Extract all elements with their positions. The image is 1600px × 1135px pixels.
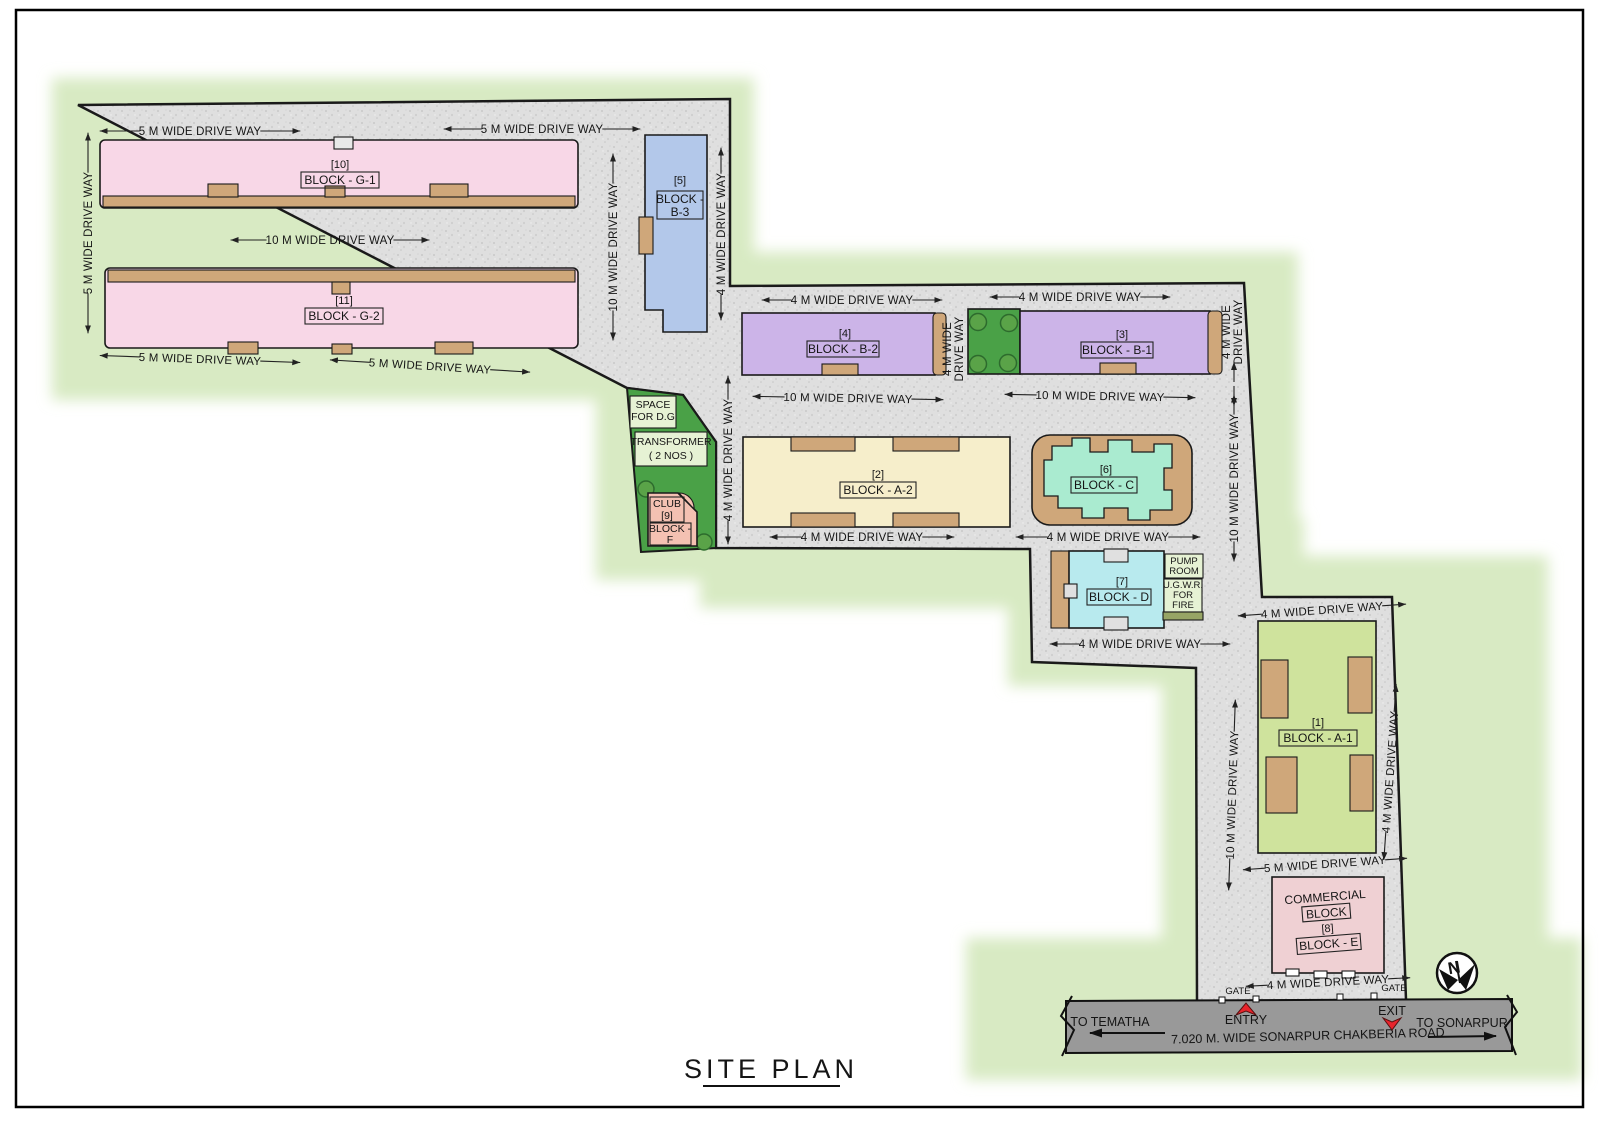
gate-post [1337,994,1343,1000]
block-g1-number: [10] [331,159,349,171]
block-c-name: BLOCK - C [1074,478,1134,492]
transformer-label: ( 2 NOS ) [649,450,693,462]
tree-icon [1000,355,1017,372]
block-b2: [4] BLOCK - B-2 [742,313,946,375]
club-label: CLUB [653,498,681,510]
svg-text:4 M WIDE DRIVE WAY: 4 M WIDE DRIVE WAY [1019,292,1142,304]
ugwr-label: FIRE [1172,600,1194,611]
entry-notch [1064,584,1077,598]
road: TO TEMATHA TO SONARPUR 7.020 M. WIDE SON… [1061,995,1517,1056]
driveway-label: 4 M WIDEDRIVE WAY [942,316,966,381]
site-plan-drawing: TO TEMATHA TO SONARPUR 7.020 M. WIDE SON… [0,0,1600,1135]
page-title: SITE PLAN [684,1054,858,1084]
block-d-number: [7] [1116,576,1128,588]
svg-text:10 M WIDE DRIVE WAY: 10 M WIDE DRIVE WAY [265,235,394,247]
svg-text:10 M WIDE DRIVE WAY: 10 M WIDE DRIVE WAY [1229,413,1241,542]
block-f-name: F [667,534,673,546]
block-e-commercial: COMMERCIAL BLOCK [8] BLOCK - E [1272,877,1384,978]
block-b3: [5] BLOCK - B-3 [639,135,707,332]
block-a2-name: BLOCK - A-2 [843,483,913,497]
svg-text:4 M WIDE DRIVE WAY: 4 M WIDE DRIVE WAY [1079,639,1202,651]
space-for-dg-label: SPACE [636,399,671,411]
verandah-strip [103,196,575,207]
svg-text:4 M WIDE DRIVE WAY: 4 M WIDE DRIVE WAY [723,399,735,522]
block-b2-name: BLOCK - B-2 [808,342,878,356]
block-c-number: [6] [1100,464,1112,476]
svg-text:4 M WIDE DRIVE WAY: 4 M WIDE DRIVE WAY [791,295,914,307]
tree-icon [1001,315,1018,332]
north-compass-icon: N [1437,953,1477,993]
driveway-label: 4 M WIDEDRIVE WAY [1221,299,1245,364]
block-a1: [1] BLOCK - A-1 [1258,621,1376,853]
block-b3-number: [5] [674,175,686,187]
block-b1-name: BLOCK - B-1 [1082,343,1152,357]
entry-notch [1104,617,1128,630]
svg-text:5 M WIDE DRIVE WAY: 5 M WIDE DRIVE WAY [481,124,604,136]
block-b1: [3] BLOCK - B-1 [968,309,1222,374]
svg-text:4 M WIDE DRIVE WAY: 4 M WIDE DRIVE WAY [801,532,924,544]
block-b3-name: B-3 [671,205,690,219]
site-plan-page: TO TEMATHA TO SONARPUR 7.020 M. WIDE SON… [0,0,1600,1135]
block-a1-number: [1] [1312,717,1324,729]
block-b2-number: [4] [839,328,851,340]
block-c: [6] BLOCK - C [1032,435,1192,525]
svg-text:5 M WIDE DRIVE WAY: 5 M WIDE DRIVE WAY [139,126,262,138]
gate-label-entry: GATE [1225,986,1250,997]
block-a1-name: BLOCK - A-1 [1283,731,1353,745]
gate-post [1371,993,1377,999]
entry-notch [334,137,353,149]
block-g2-name: BLOCK - G-2 [308,309,380,323]
tree-icon [970,314,987,331]
svg-text:10 M WIDE DRIVE WAY: 10 M WIDE DRIVE WAY [783,392,912,406]
ugwr-edge-strip [1163,612,1203,620]
block-a2: [2] BLOCK - A-2 [743,437,1010,527]
gate-post [1253,996,1259,1002]
block-g1-name: BLOCK - G-1 [304,173,376,187]
svg-text:10 M WIDE DRIVE WAY: 10 M WIDE DRIVE WAY [1035,390,1164,404]
exit-label: EXIT [1378,1004,1406,1018]
space-for-dg-label: FOR D.G [631,411,675,423]
driveway-label: 4 M WIDE DRIVE WAY [723,376,735,545]
pump-room-label: ROOM [1169,566,1199,577]
entry-label: ENTRY [1225,1013,1268,1027]
svg-text:4 M WIDE DRIVE WAY: 4 M WIDE DRIVE WAY [1047,532,1170,544]
gate-post [1219,997,1225,1003]
block-d: [7] BLOCK - D PUMP ROOM U.G.W.R. FOR FIR… [1051,549,1203,630]
svg-text:4 M WIDEDRIVE WAY: 4 M WIDEDRIVE WAY [942,316,966,381]
svg-text:10 M WIDE DRIVE WAY: 10 M WIDE DRIVE WAY [608,182,620,311]
block-g1: [10] BLOCK - G-1 [100,137,578,208]
block-g2-number: [11] [335,295,353,307]
driveway-label: 4 M WIDE DRIVE WAY [716,148,728,321]
svg-text:5 M WIDE DRIVE WAY: 5 M WIDE DRIVE WAY [83,172,95,295]
verandah-strip [108,270,575,282]
block-f-club: CLUB [9] BLOCK - F [648,493,697,546]
block-d-name: BLOCK - D [1089,590,1149,604]
svg-text:4 M WIDEDRIVE WAY: 4 M WIDEDRIVE WAY [1221,299,1245,364]
block-e-number: [8] [1321,923,1334,936]
svg-text:4 M WIDE DRIVE WAY: 4 M WIDE DRIVE WAY [716,173,728,296]
block-g2: [11] BLOCK - G-2 [105,268,578,354]
tree-icon [970,356,987,373]
block-a2-number: [2] [872,469,884,481]
entry-notch [1104,549,1128,562]
road-destination-left: TO TEMATHA [1070,1015,1150,1029]
block-f-number: [9] [661,510,673,522]
transformer-label: TRANSFORMER [630,436,712,448]
drawing-title: SITE PLAN [684,1054,858,1086]
block-b3-name: BLOCK - [656,192,704,206]
driveway-label: 10 M WIDE DRIVE WAY [1229,395,1241,562]
block-b1-number: [3] [1116,329,1128,341]
tree-icon [696,534,712,550]
